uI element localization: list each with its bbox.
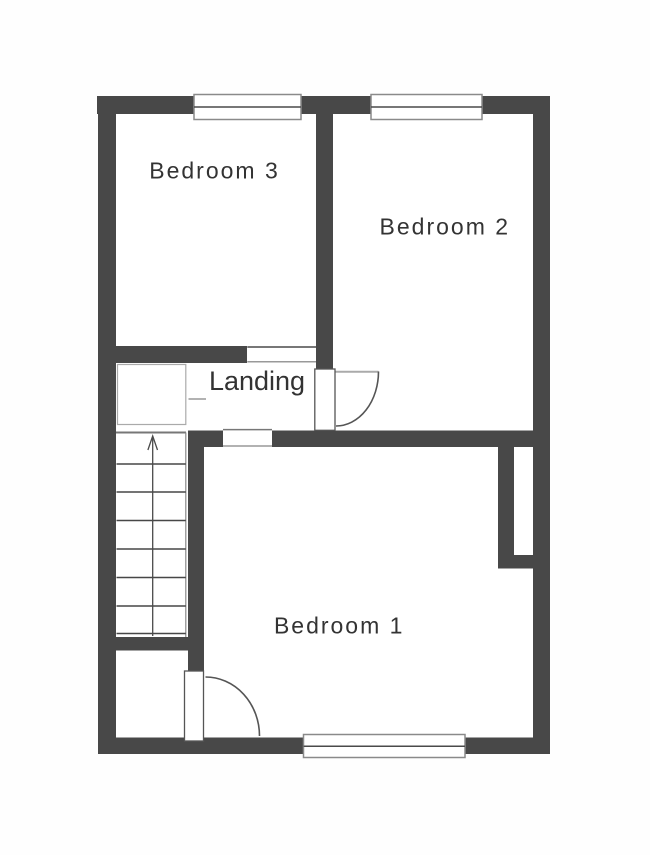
svg-text:Bedroom 3: Bedroom 3 xyxy=(149,158,280,184)
svg-text:Bedroom 2: Bedroom 2 xyxy=(380,214,511,240)
svg-text:Bedroom 1: Bedroom 1 xyxy=(274,613,405,639)
svg-text:Landing: Landing xyxy=(209,366,305,396)
